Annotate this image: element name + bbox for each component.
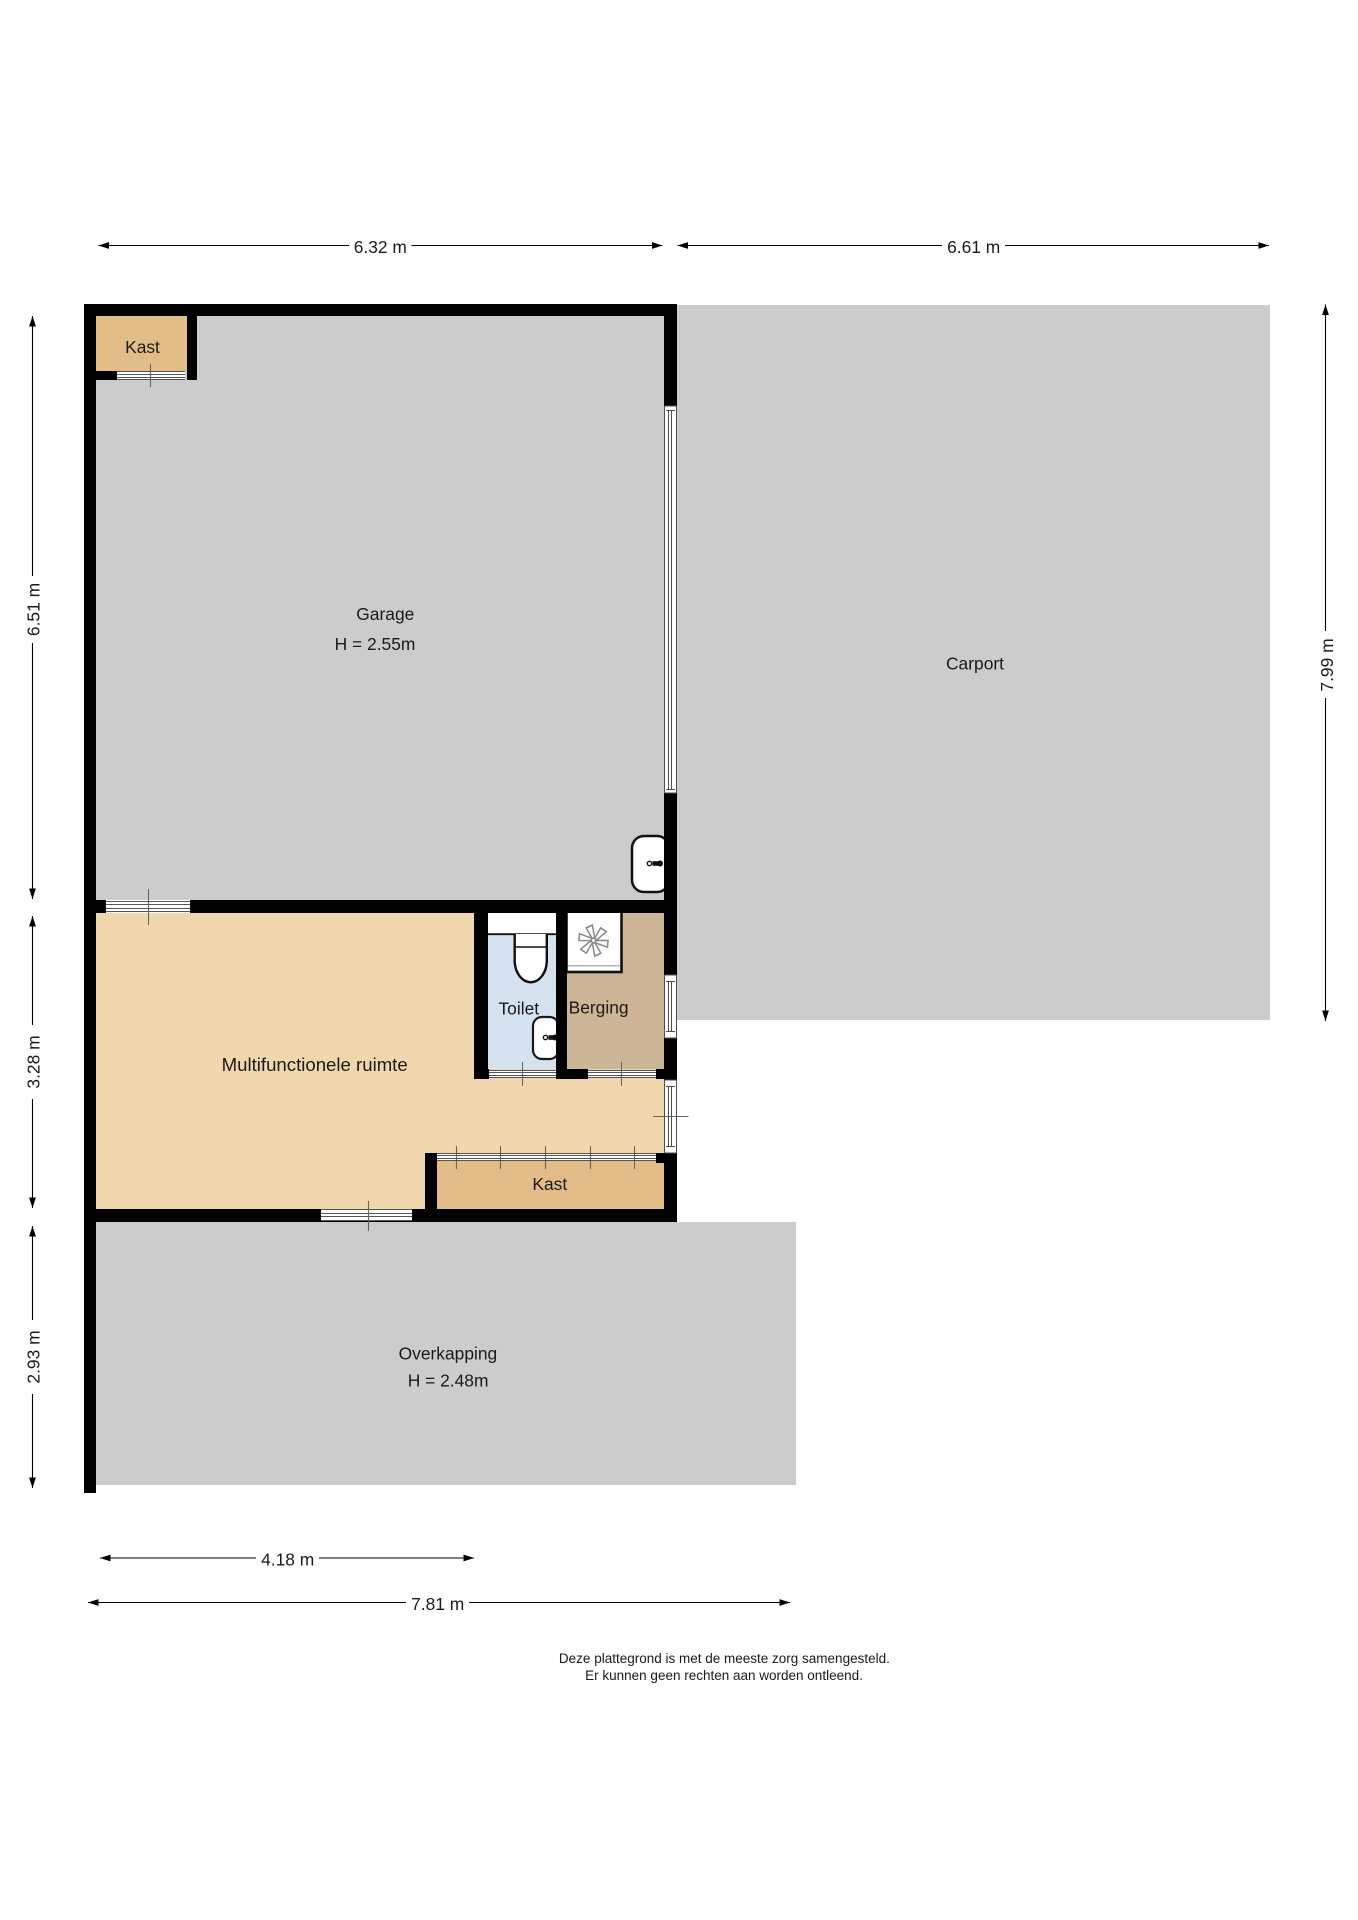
svg-text:Toilet: Toilet xyxy=(498,999,539,1019)
svg-text:Garage: Garage xyxy=(356,604,414,624)
svg-text:Overkapping: Overkapping xyxy=(399,1344,498,1364)
svg-text:Kast: Kast xyxy=(532,1174,567,1194)
svg-text:4.18 m: 4.18 m xyxy=(261,1550,314,1570)
svg-text:H = 2.55m: H = 2.55m xyxy=(335,634,416,654)
svg-text:6.61 m: 6.61 m xyxy=(947,237,1000,257)
svg-text:Carport: Carport xyxy=(946,654,1004,674)
svg-text:Kast: Kast xyxy=(125,337,160,357)
svg-text:6.32 m: 6.32 m xyxy=(354,237,407,257)
svg-text:H = 2.48m: H = 2.48m xyxy=(408,1371,489,1391)
svg-text:2.93 m: 2.93 m xyxy=(24,1330,44,1383)
svg-text:7.81 m: 7.81 m xyxy=(411,1594,464,1614)
svg-text:7.99 m: 7.99 m xyxy=(1317,638,1337,691)
svg-text:Multifunctionele ruimte: Multifunctionele ruimte xyxy=(222,1054,408,1075)
svg-text:Deze plattegrond is met de mee: Deze plattegrond is met de meeste zorg s… xyxy=(559,1651,890,1666)
svg-text:6.51 m: 6.51 m xyxy=(24,583,44,636)
svg-text:3.28 m: 3.28 m xyxy=(24,1035,44,1088)
svg-text:Berging: Berging xyxy=(569,998,629,1018)
svg-text:Er kunnen geen rechten aan wor: Er kunnen geen rechten aan worden ontlee… xyxy=(585,1668,863,1683)
